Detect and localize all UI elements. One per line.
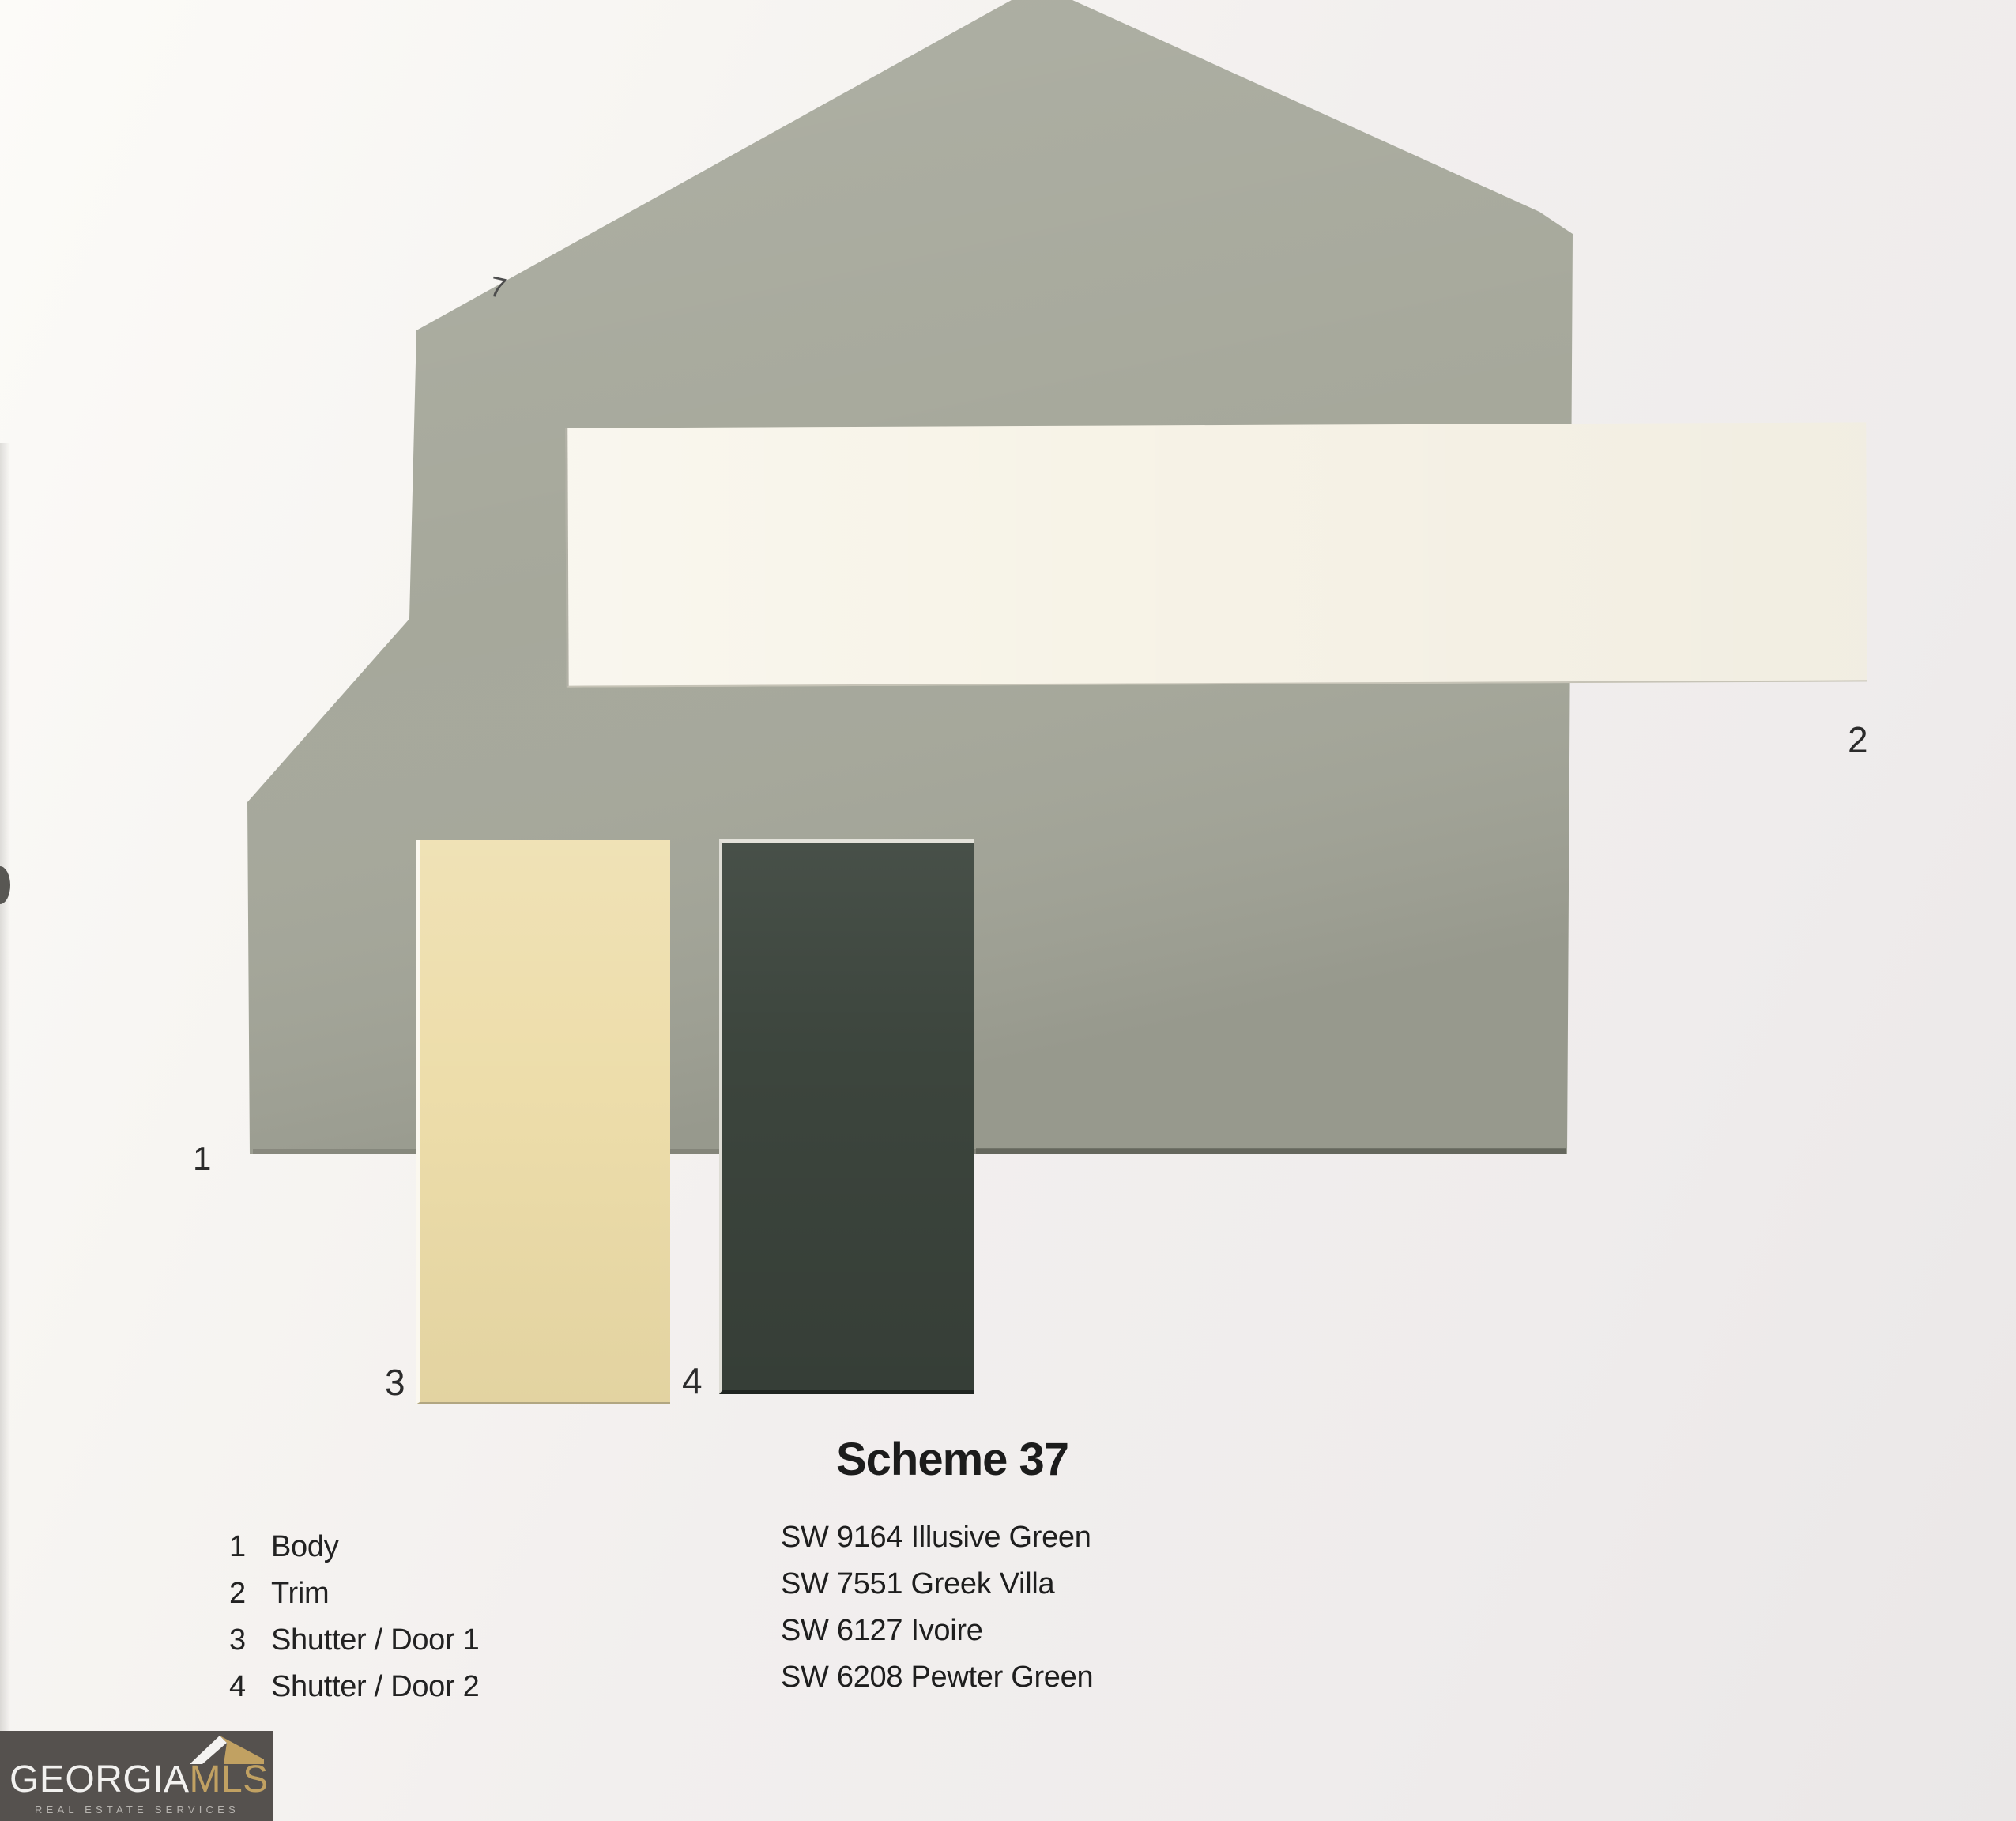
legend-item-body: 1 Body xyxy=(229,1524,479,1570)
legend-label: Shutter / Door 2 xyxy=(271,1670,479,1704)
legend-label: Shutter / Door 1 xyxy=(271,1623,479,1657)
marker-trim: 2 xyxy=(1848,722,1868,758)
trim-swatch xyxy=(565,422,1867,687)
legend-num: 3 xyxy=(229,1623,271,1657)
legend-item-shutter-door-1: 3 Shutter / Door 1 xyxy=(229,1617,479,1664)
logo-text-georgia: GEORGIA xyxy=(9,1759,190,1800)
legend-label: Body xyxy=(271,1530,338,1564)
marker-shutter-door-1: 3 xyxy=(385,1364,405,1401)
color-code-trim: SW 7551 Greek Villa xyxy=(781,1561,1093,1608)
legend-num: 4 xyxy=(229,1670,271,1704)
color-code-shutter-door-2: SW 6208 Pewter Green xyxy=(781,1654,1093,1701)
color-code-list: SW 9164 Illusive Green SW 7551 Greek Vil… xyxy=(781,1514,1093,1701)
page-edge-shadow xyxy=(0,443,10,1731)
legend-num: 1 xyxy=(229,1530,271,1564)
logo-tagline: REAL ESTATE SERVICES xyxy=(35,1804,239,1815)
legend-item-trim: 2 Trim xyxy=(229,1570,479,1617)
legend-item-shutter-door-2: 4 Shutter / Door 2 xyxy=(229,1664,479,1710)
logo-wordmark: GEORGIAMLS xyxy=(9,1759,269,1800)
shutter-door-2-swatch xyxy=(719,839,974,1394)
paint-scheme-card: 1 2 3 4 Scheme 37 1 Body 2 Trim 3 Shutte… xyxy=(0,0,2016,1821)
legend-list: 1 Body 2 Trim 3 Shutter / Door 1 4 Shutt… xyxy=(229,1524,479,1710)
shutter-door-1-swatch xyxy=(416,840,670,1404)
legend-label: Trim xyxy=(271,1577,329,1611)
scheme-title: Scheme 37 xyxy=(747,1435,1158,1484)
legend-num: 2 xyxy=(229,1577,271,1611)
color-code-body: SW 9164 Illusive Green xyxy=(781,1514,1093,1561)
color-code-shutter-door-1: SW 6127 Ivoire xyxy=(781,1608,1093,1654)
georgia-mls-logo: GEORGIAMLS REAL ESTATE SERVICES xyxy=(0,1731,273,1821)
marker-body: 1 xyxy=(193,1142,211,1175)
marker-shutter-door-2: 4 xyxy=(682,1363,703,1399)
logo-text-mls: MLS xyxy=(190,1759,269,1800)
